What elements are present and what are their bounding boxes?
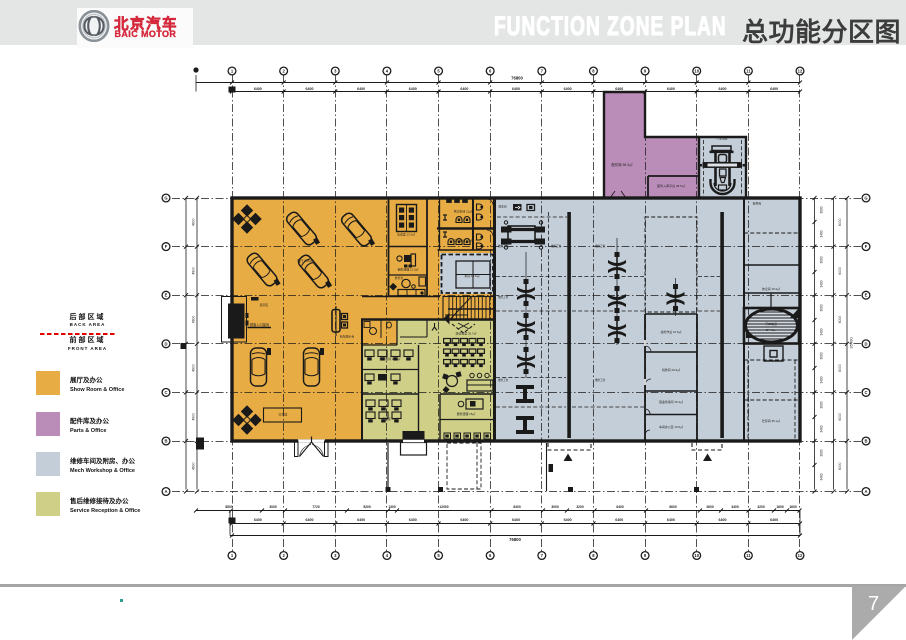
svg-text:6400: 6400 [305,87,313,91]
svg-text:机修间 20.9㎡: 机修间 20.9㎡ [662,367,680,372]
svg-text:6400: 6400 [770,518,778,522]
svg-text:维修工位: 维修工位 [498,244,509,248]
svg-text:12: 12 [798,553,803,558]
svg-text:E: E [165,293,168,298]
svg-text:车间办公室 19.9㎡: 车间办公室 19.9㎡ [659,424,683,429]
svg-text:2600: 2600 [706,505,714,509]
svg-text:总检作业 16.5㎡: 总检作业 16.5㎡ [661,329,682,334]
svg-text:6400: 6400 [667,87,675,91]
svg-text:顾客入口接待: 顾客入口接待 [250,322,270,327]
svg-text:2F 4.2m: 2F 4.2m [766,328,777,332]
svg-text:11: 11 [746,553,751,558]
svg-text:3400: 3400 [820,425,824,432]
svg-text:展示区: 展示区 [260,303,269,307]
svg-text:D: D [864,341,867,346]
svg-text:6400: 6400 [357,518,365,522]
svg-text:交车区: 交车区 [278,412,287,417]
svg-text:维修工位: 维修工位 [595,378,606,382]
svg-text:6400: 6400 [512,87,520,91]
svg-text:6400: 6400 [357,87,365,91]
svg-text:6400: 6400 [512,518,520,522]
svg-text:6600: 6600 [669,505,677,509]
svg-text:6400: 6400 [564,518,572,522]
svg-text:服务经理 15㎡: 服务经理 15㎡ [457,411,476,416]
svg-text:展厅 536㎡: 展厅 536㎡ [297,258,314,263]
svg-text:3000: 3000 [820,449,824,456]
svg-text:10: 10 [694,553,699,558]
svg-text:6000: 6000 [838,267,842,275]
svg-text:3000: 3000 [269,505,277,509]
svg-text:培训教室 36.7㎡: 培训教室 36.7㎡ [456,331,477,336]
svg-text:配件库: 配件库 [753,202,762,206]
svg-text:3200: 3200 [576,505,584,509]
svg-text:3000: 3000 [820,401,824,408]
svg-text:6000: 6000 [838,364,842,372]
svg-text:维修工位: 维修工位 [498,378,509,382]
svg-text:6400: 6400 [615,87,623,91]
svg-text:76800: 76800 [511,76,523,81]
svg-text:6400: 6400 [305,518,313,522]
svg-text:G: G [864,196,867,201]
svg-text:配件库 96.3㎡: 配件库 96.3㎡ [611,162,633,167]
svg-text:3200: 3200 [757,505,765,509]
svg-text:E: E [865,293,868,298]
svg-text:维修工位: 维修工位 [498,295,509,299]
svg-text:3400: 3400 [820,280,824,287]
svg-text:A: A [164,489,167,494]
svg-text:6400: 6400 [564,87,572,91]
svg-text:3400: 3400 [820,328,824,335]
svg-text:F: F [165,244,168,249]
svg-text:6400: 6400 [615,518,623,522]
svg-text:6400: 6400 [460,518,468,522]
svg-text:洽谈室 13.2㎡: 洽谈室 13.2㎡ [397,232,415,237]
svg-text:3000: 3000 [820,352,824,359]
svg-text:35400: 35400 [849,337,854,349]
svg-text:F: F [865,244,868,249]
svg-text:钣金喷漆间 15.4㎡: 钣金喷漆间 15.4㎡ [659,399,683,404]
svg-text:客服区 48㎡: 客服区 48㎡ [382,416,398,421]
svg-text:6000: 6000 [838,413,842,421]
svg-text:休息间 15.3㎡: 休息间 15.3㎡ [762,286,780,291]
svg-text:6000: 6000 [838,462,842,470]
svg-text:3000: 3000 [820,206,824,213]
svg-text:4900: 4900 [192,316,196,324]
svg-text:5200: 5200 [363,505,371,509]
svg-text:6400: 6400 [409,87,417,91]
svg-text:D: D [164,341,167,346]
svg-text:维修接待 14.3㎡: 维修接待 14.3㎡ [380,356,401,361]
svg-text:10: 10 [694,69,699,74]
svg-text:6000: 6000 [838,218,842,226]
svg-text:汽车电梯: 汽车电梯 [716,137,727,141]
svg-text:3400: 3400 [820,376,824,383]
svg-text:A: A [864,489,867,494]
svg-text:6400: 6400 [770,87,778,91]
svg-text:4900: 4900 [192,218,196,226]
svg-text:财务室: 财务室 [395,276,404,280]
svg-text:6400: 6400 [409,518,417,522]
svg-text:1600: 1600 [776,505,784,509]
svg-text:3400: 3400 [820,473,824,480]
svg-text:3000: 3000 [551,505,559,509]
svg-text:7: 7 [868,593,879,615]
svg-text:维修工位: 维修工位 [595,244,606,248]
svg-text:6400: 6400 [719,87,727,91]
svg-text:6400: 6400 [254,518,262,522]
svg-text:76800: 76800 [509,537,521,542]
svg-text:6400: 6400 [667,518,675,522]
svg-text:4900: 4900 [192,267,196,275]
svg-text:新车展示台: 新车展示台 [340,334,355,339]
svg-text:3000: 3000 [820,304,824,311]
svg-text:12: 12 [798,69,803,74]
svg-text:B: B [164,439,167,444]
svg-text:3400: 3400 [731,505,739,509]
svg-text:配件入库平台 36.5㎡: 配件入库平台 36.5㎡ [657,183,685,188]
svg-text:12000: 12000 [439,505,448,509]
svg-text:女卫生间 12㎡: 女卫生间 12㎡ [454,238,473,243]
svg-text:11: 11 [746,69,751,74]
svg-text:洗车间: 洗车间 [498,205,507,209]
svg-text:B: B [864,439,867,444]
svg-text:6400: 6400 [616,505,624,509]
svg-text:汽车坡道: 汽车坡道 [765,321,777,326]
svg-text:C: C [864,390,867,395]
svg-text:6400: 6400 [513,505,521,509]
svg-text:7720: 7720 [312,505,320,509]
svg-text:维修工位: 维修工位 [551,244,562,248]
svg-text:3000: 3000 [820,256,824,263]
svg-text:3400: 3400 [820,230,824,237]
svg-text:贮存间 35.1㎡: 贮存间 35.1㎡ [762,418,780,423]
svg-text:6000: 6000 [838,316,842,324]
svg-text:1600: 1600 [789,505,797,509]
svg-text:6400: 6400 [460,87,468,91]
svg-text:1300: 1300 [388,505,396,509]
svg-text:销售经理 13.3㎡: 销售经理 13.3㎡ [398,267,419,272]
svg-text:6400: 6400 [254,87,262,91]
svg-text:机房 14.6㎡: 机房 14.6㎡ [464,273,479,278]
svg-text:6400: 6400 [719,518,727,522]
svg-text:8500: 8500 [225,505,233,509]
svg-text:男卫生间 12㎡: 男卫生间 12㎡ [454,209,473,214]
svg-text:G: G [164,196,167,201]
svg-text:4900: 4900 [192,364,196,372]
